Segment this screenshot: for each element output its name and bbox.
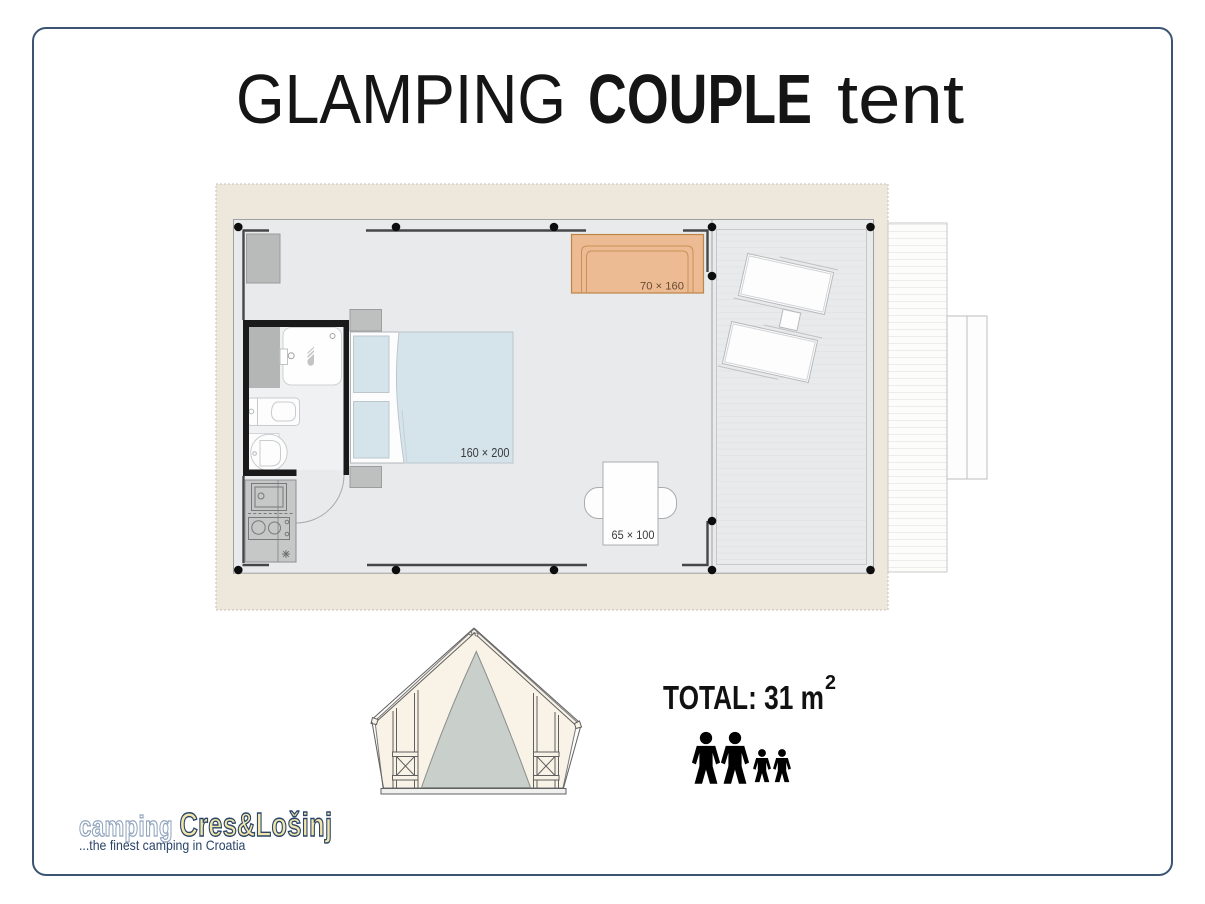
svg-text:65 × 100: 65 × 100 xyxy=(612,528,655,542)
svg-text:160 × 200: 160 × 200 xyxy=(461,446,510,460)
svg-text:tent: tent xyxy=(837,60,964,138)
svg-text:GLAMPING: GLAMPING xyxy=(236,60,566,138)
svg-text:2: 2 xyxy=(825,672,836,694)
svg-text:TOTAL: 31 m: TOTAL: 31 m xyxy=(663,680,824,717)
svg-text:70 × 160: 70 × 160 xyxy=(640,281,684,293)
svg-text:COUPLE: COUPLE xyxy=(588,60,812,138)
